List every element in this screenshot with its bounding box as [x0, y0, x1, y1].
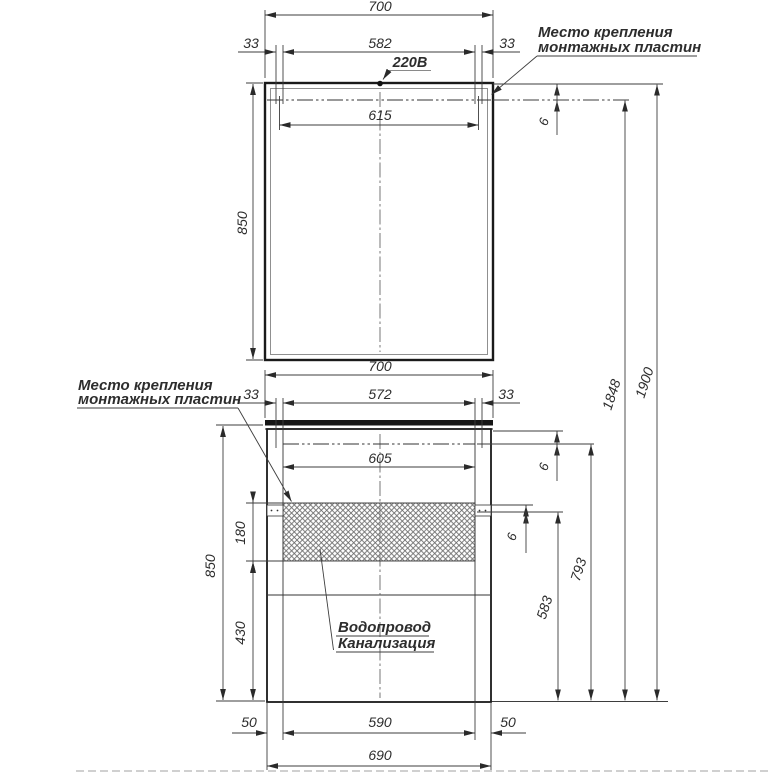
- dim-bottom-zone-height: 430: [232, 621, 248, 645]
- dim-mirror-height: 850: [234, 211, 250, 235]
- dim-cabinet-zone-offset: 6: [503, 530, 520, 542]
- dim-mirror-plate-gap: 582: [368, 35, 392, 51]
- dim-cabinet-plate-span: 605: [368, 450, 392, 466]
- dim-mirror-offset-right: 33: [499, 35, 515, 51]
- dim-service-zone-height: 180: [232, 521, 248, 545]
- dim-mirror-overall-width: 700: [368, 0, 392, 14]
- dim-counter-line-to-floor: 793: [567, 556, 590, 583]
- technical-drawing-page: 700 582 33 33 220В 615 850 6 1848 1900 7…: [0, 0, 776, 776]
- plumbing-label-line1: Водопровод: [338, 619, 431, 636]
- dim-mirror-plate-offset: 6: [535, 115, 552, 127]
- dim-cabinet-overall-width: 700: [368, 358, 392, 374]
- dim-foot-right: 50: [500, 714, 516, 730]
- mounting-label-left-line2: монтажных пластин: [78, 391, 241, 408]
- dim-overall-plate-height: 1848: [599, 377, 624, 412]
- power-label: 220В: [392, 55, 428, 71]
- service-zone-hatch: [267, 503, 491, 561]
- dim-base-width: 690: [368, 747, 392, 763]
- dim-bottom-width: 590: [368, 714, 392, 730]
- dim-cabinet-height: 850: [202, 554, 218, 578]
- dim-cabinet-plate-offset: 6: [535, 460, 552, 472]
- mounting-label-top-line2: монтажных пластин: [538, 39, 701, 56]
- bathroom-furniture-installation-drawing: 700 582 33 33 220В 615 850 6 1848 1900 7…: [0, 0, 776, 776]
- power-point-dot: [377, 81, 383, 87]
- mirror-dimensions: [238, 10, 668, 702]
- mounting-label-left-leader: [77, 408, 292, 502]
- cabinet-dimensions: [216, 370, 594, 770]
- countertop: [265, 420, 493, 426]
- dim-overall-total-height: 1900: [632, 365, 657, 400]
- mirror-mounting-plate-marks: [276, 45, 482, 104]
- dim-cabinet-plate-gap: 572: [368, 386, 392, 402]
- dim-cabinet-offset-left: 33: [243, 386, 259, 402]
- mounting-plate-left: [267, 505, 283, 516]
- plumbing-label-line2: Канализация: [338, 635, 435, 652]
- dim-foot-left: 50: [241, 714, 257, 730]
- mounting-label-top-leader: [492, 56, 698, 95]
- dim-cabinet-offset-right: 33: [498, 386, 514, 402]
- dim-mirror-offset-left: 33: [243, 35, 259, 51]
- dim-plate-line-to-floor: 583: [533, 594, 556, 621]
- mounting-plate-right: [475, 505, 491, 516]
- dim-mirror-plate-span: 615: [368, 107, 392, 123]
